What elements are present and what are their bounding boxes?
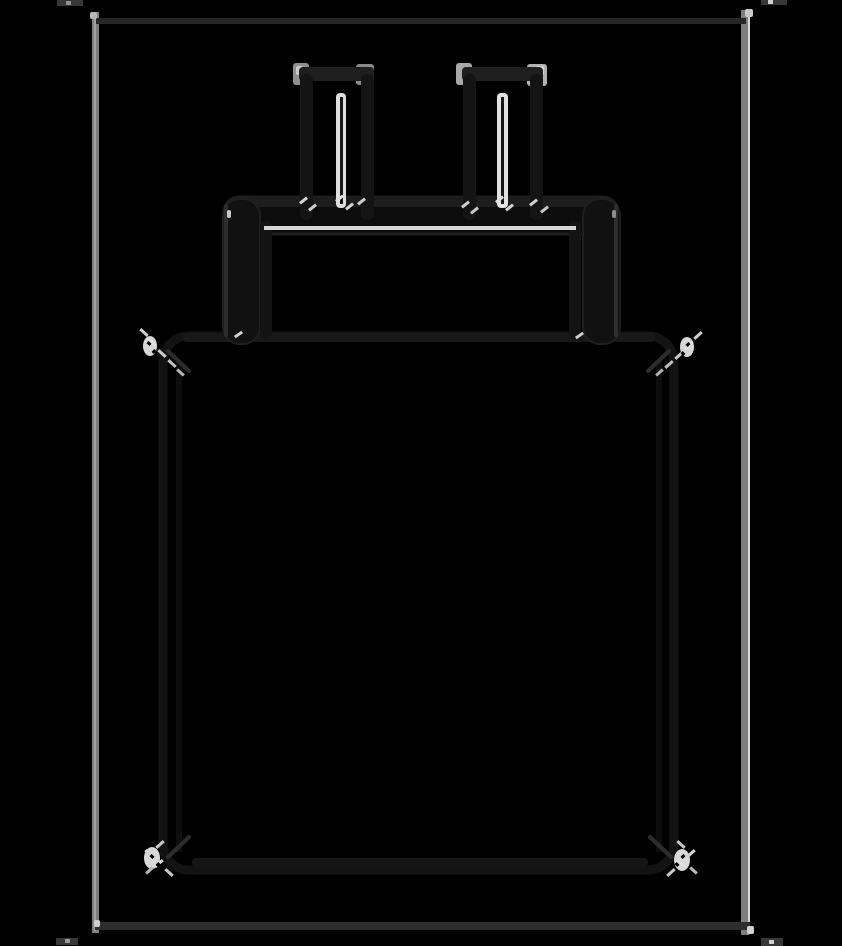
body-corner-sketch-tl-tick-1 — [139, 328, 148, 337]
body-corner-sketch-tr-tick-1 — [693, 331, 702, 340]
collar-underline-highlight — [264, 226, 576, 230]
frame-corner-dot-br — [747, 926, 754, 934]
frame-tick-bottom-left-dot — [65, 939, 70, 943]
collar-left-leg-inner-line — [260, 221, 272, 338]
frame-tick-top-right — [761, 0, 787, 5]
frame-right-core — [748, 12, 750, 933]
body-left-inner-line — [176, 360, 182, 852]
charger-sketch-svg — [0, 0, 842, 946]
collar-left-leg-top-dot — [227, 210, 231, 218]
collar-right-leg-inner-line — [569, 221, 581, 338]
collar-right-leg-top-dot — [612, 210, 616, 218]
body-outline — [163, 336, 674, 870]
right-prong-left-edge — [463, 74, 476, 220]
body-corner-sketch-br-tick-5 — [689, 866, 698, 874]
frame-right-edge — [741, 10, 749, 935]
body-corner-sketch-br-blob — [674, 849, 690, 871]
frame-tick-top-right-dot — [768, 0, 773, 4]
body-right-inner-line — [656, 360, 662, 852]
frame-bottom-edge — [95, 922, 750, 930]
frame-top-edge — [96, 18, 746, 24]
collar-right-leg-outer-edge — [614, 204, 618, 337]
frame-corner-dot-tr — [745, 9, 753, 17]
body-corner-sketch-br-tick-4 — [666, 868, 675, 877]
frame-tick-top-left-dot — [66, 1, 71, 5]
left-prong-right-edge — [361, 74, 374, 220]
body-bottom-edge-emphasis — [192, 858, 648, 867]
collar-top-emphasis — [240, 197, 602, 207]
frame-corner-dot-tl — [90, 12, 97, 19]
frame-corner-dot-bl — [94, 920, 100, 927]
frame-left-core — [94, 14, 96, 931]
collar-left-leg-outer-edge — [224, 204, 228, 337]
sketch-canvas — [0, 0, 842, 946]
left-prong-inner-core — [340, 97, 343, 204]
collar-left-leg — [223, 199, 260, 344]
frame-tick-bottom-right-dot — [769, 940, 774, 944]
right-prong-inner-core — [501, 97, 504, 204]
right-prong-right-edge — [530, 74, 543, 220]
